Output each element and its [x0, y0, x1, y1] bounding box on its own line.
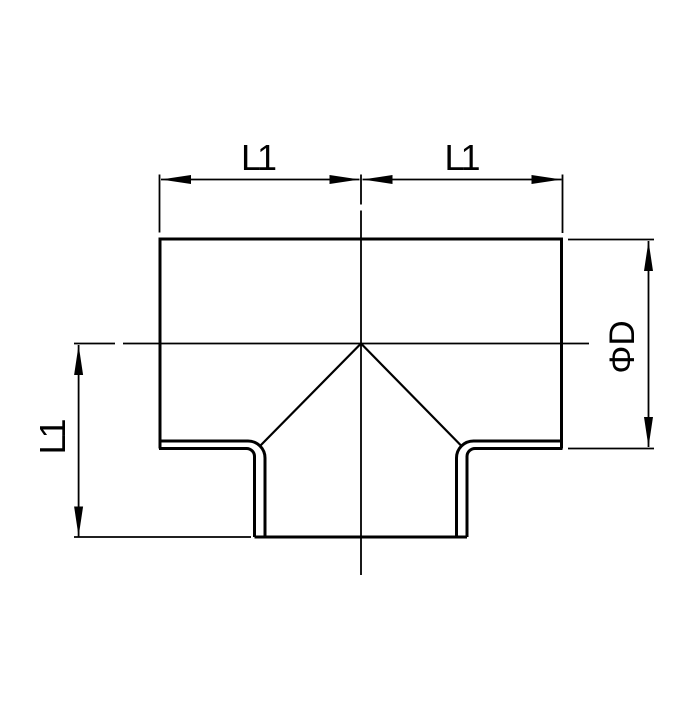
svg-text:ΦD: ΦD	[603, 320, 642, 373]
svg-text:L1: L1	[444, 137, 479, 178]
svg-text:L1: L1	[32, 420, 73, 455]
svg-text:L1: L1	[241, 137, 276, 178]
